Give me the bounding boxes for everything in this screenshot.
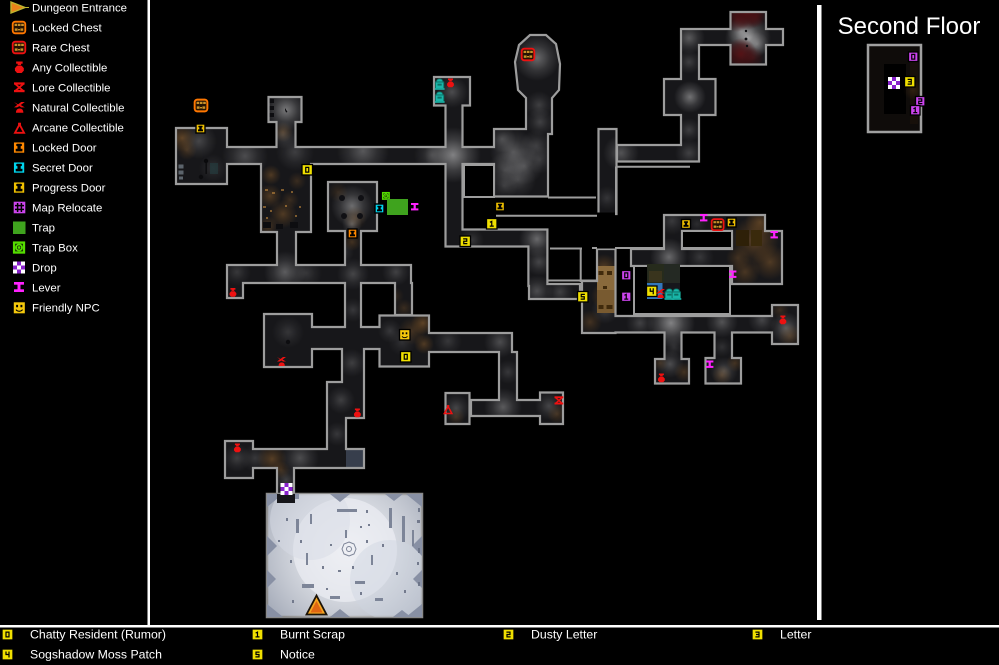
svg-text:Any Collectible: Any Collectible [32,63,107,75]
svg-text:Letter: Letter [780,628,811,642]
svg-text:Chatty Resident (Rumor): Chatty Resident (Rumor) [30,628,166,642]
svg-text:Lever: Lever [32,283,61,295]
svg-text:Arcane Collectible: Arcane Collectible [32,123,124,135]
svg-text:Burnt Scrap: Burnt Scrap [280,628,345,642]
svg-text:Progress Door: Progress Door [32,183,106,195]
svg-text:Lore Collectible: Lore Collectible [32,83,111,95]
svg-text:Dusty Letter: Dusty Letter [531,628,597,642]
svg-text:Locked Chest: Locked Chest [32,23,102,35]
svg-text:Dungeon Entrance: Dungeon Entrance [32,3,127,15]
svg-text:Map Relocate: Map Relocate [32,203,102,215]
svg-text:Second Floor: Second Floor [838,13,981,40]
svg-text:Friendly NPC: Friendly NPC [32,303,100,315]
svg-text:Notice: Notice [280,648,315,662]
svg-text:Natural Collectible: Natural Collectible [32,103,124,115]
svg-text:Rare Chest: Rare Chest [32,43,90,55]
svg-text:Locked Door: Locked Door [32,143,97,155]
svg-text:Trap: Trap [32,223,55,235]
svg-text:Trap Box: Trap Box [32,243,78,255]
svg-text:Sogshadow Moss Patch: Sogshadow Moss Patch [30,648,162,662]
svg-text:Drop: Drop [32,263,57,275]
svg-text:Secret Door: Secret Door [32,163,93,175]
